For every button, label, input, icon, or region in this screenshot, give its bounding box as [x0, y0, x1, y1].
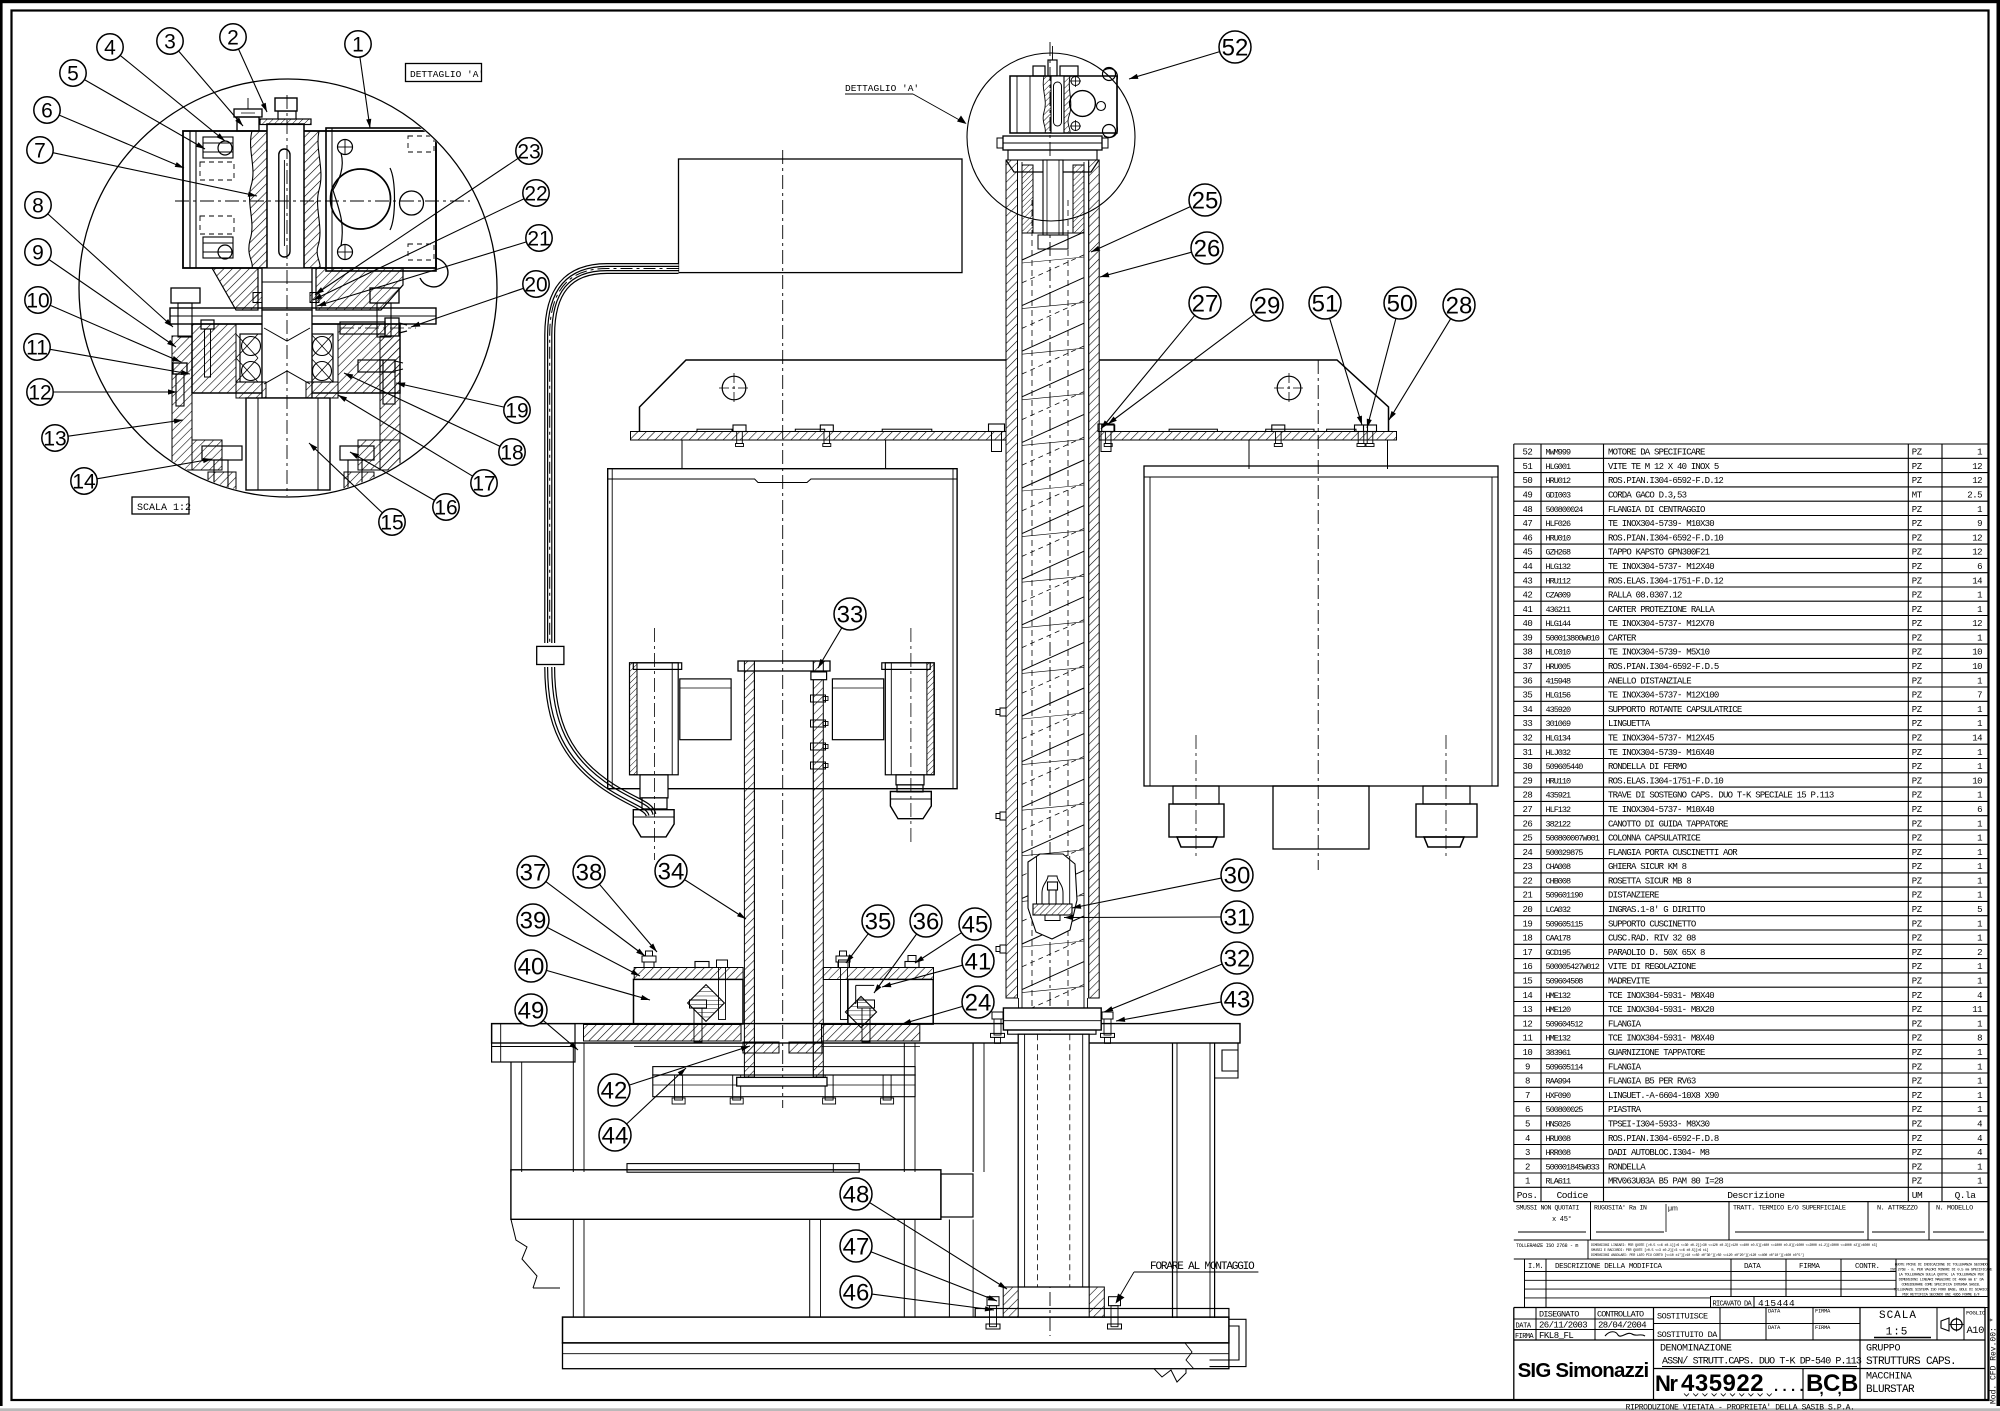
svg-text:RONDELLA: RONDELLA: [1608, 1162, 1646, 1172]
svg-text:PZ: PZ: [1912, 1148, 1923, 1158]
svg-text:PZ: PZ: [1912, 819, 1923, 829]
svg-text:ROS.PIAN.I304-6592-F.D.10: ROS.PIAN.I304-6592-F.D.10: [1608, 533, 1723, 543]
svg-text:7: 7: [1525, 1091, 1530, 1101]
svg-text:PZ: PZ: [1912, 776, 1923, 786]
svg-text:HLG132: HLG132: [1546, 562, 1572, 572]
svg-text:HLG134: HLG134: [1546, 734, 1572, 744]
svg-text:PZ: PZ: [1912, 1005, 1923, 1015]
svg-text:21: 21: [1522, 891, 1532, 901]
svg-text:36: 36: [913, 908, 940, 935]
svg-text:HXF090: HXF090: [1546, 1091, 1572, 1101]
svg-text:PZ: PZ: [1912, 877, 1923, 887]
svg-text:10: 10: [1522, 1048, 1532, 1058]
svg-text:TRAVE DI SOSTEGNO CAPS. DUO T-: TRAVE DI SOSTEGNO CAPS. DUO T-K SPECIALE…: [1608, 791, 1834, 801]
svg-text:22: 22: [524, 182, 547, 205]
svg-text:PZ: PZ: [1912, 834, 1923, 844]
svg-text:ROS.ELAS.I304-1751-F.D.10: ROS.ELAS.I304-1751-F.D.10: [1608, 776, 1723, 786]
svg-text:PZ: PZ: [1912, 591, 1923, 601]
svg-text:PZ: PZ: [1912, 934, 1923, 944]
svg-text:COLONNA CAPSULATRICE: COLONNA CAPSULATRICE: [1608, 834, 1700, 844]
svg-text:1: 1: [1977, 633, 1982, 643]
svg-text:7: 7: [1977, 691, 1982, 701]
svg-text:34: 34: [1522, 705, 1532, 715]
svg-text:4: 4: [1977, 1148, 1982, 1158]
svg-text:18: 18: [500, 441, 523, 464]
svg-text:5: 5: [67, 62, 79, 85]
svg-text:FLANGIA B5 PER RV63: FLANGIA B5 PER RV63: [1608, 1077, 1696, 1087]
svg-text:I.M.: I.M.: [1528, 1263, 1543, 1271]
svg-text:FIRMA: FIRMA: [1815, 1324, 1831, 1331]
svg-text:39: 39: [1522, 633, 1532, 643]
svg-text:LA TOLLERANZA SULLA QUOTA; LA: LA TOLLERANZA SULLA QUOTA; LA TOLLERANZA…: [1899, 1274, 1985, 1278]
svg-text:49: 49: [518, 997, 545, 1024]
svg-text:17: 17: [472, 472, 495, 495]
svg-text:TCE INOX304-5931- M8X20: TCE INOX304-5931- M8X20: [1608, 1005, 1714, 1015]
svg-text:PZ: PZ: [1912, 676, 1923, 686]
svg-text:13: 13: [1522, 1005, 1532, 1015]
svg-text:PZ: PZ: [1912, 1019, 1923, 1029]
svg-text:28: 28: [1522, 791, 1532, 801]
svg-text:509605440: 509605440: [1546, 762, 1584, 772]
svg-text:8: 8: [32, 194, 44, 217]
svg-text:1: 1: [1977, 605, 1982, 615]
svg-text:46: 46: [1522, 533, 1532, 543]
svg-text:1: 1: [1977, 819, 1982, 829]
svg-text:38: 38: [576, 859, 603, 886]
svg-text:HRU010: HRU010: [1546, 533, 1572, 543]
svg-text:QUOTE PRIVE DI INDICAZIONE DI: QUOTE PRIVE DI INDICAZIONE DI TOLLERANZA…: [1895, 1264, 1989, 1268]
svg-text:1: 1: [1977, 762, 1982, 772]
svg-text:PZ: PZ: [1912, 705, 1923, 715]
svg-text:500005427W012: 500005427W012: [1546, 962, 1600, 972]
svg-text:PZ: PZ: [1912, 548, 1923, 558]
svg-text:6: 6: [1525, 1105, 1530, 1115]
svg-text:4: 4: [104, 36, 116, 59]
svg-text:PZ: PZ: [1912, 1162, 1923, 1172]
svg-text:DETTAGLIO 'A': DETTAGLIO 'A': [410, 69, 484, 80]
svg-text:PZ: PZ: [1912, 619, 1923, 629]
svg-text:RALLA 08.0307.12: RALLA 08.0307.12: [1608, 591, 1682, 601]
svg-text:1: 1: [1977, 962, 1982, 972]
svg-text:37: 37: [1522, 662, 1532, 672]
svg-text:TPSEI-I304-5933- M8X30: TPSEI-I304-5933- M8X30: [1608, 1120, 1710, 1130]
svg-text:23: 23: [1522, 862, 1532, 872]
svg-text:31: 31: [1522, 748, 1532, 758]
svg-text:11: 11: [1522, 1034, 1532, 1044]
svg-text:2.5: 2.5: [1967, 491, 1982, 501]
svg-text:HRU005: HRU005: [1546, 662, 1572, 672]
svg-text:30: 30: [1224, 862, 1251, 889]
svg-text:ASSN/ STRUTT.CAPS. DUO T-K DP-: ASSN/ STRUTT.CAPS. DUO T-K DP-540 P.113: [1662, 1356, 1862, 1368]
svg-text:11: 11: [26, 336, 48, 359]
svg-text:UM: UM: [1912, 1190, 1923, 1201]
svg-text:19: 19: [505, 399, 528, 422]
svg-text:500029875: 500029875: [1546, 848, 1584, 858]
svg-text:FOGLIO: FOGLIO: [1966, 1310, 1986, 1317]
svg-text:33: 33: [837, 601, 864, 628]
svg-text:Nr: Nr: [1655, 1371, 1678, 1396]
svg-text:1: 1: [1977, 834, 1982, 844]
svg-text:HME120: HME120: [1546, 1005, 1572, 1015]
svg-text:HLF026: HLF026: [1546, 519, 1572, 529]
svg-text:CONTR.: CONTR.: [1855, 1263, 1880, 1271]
svg-text:1: 1: [1977, 862, 1982, 872]
svg-text:PZ: PZ: [1912, 891, 1923, 901]
svg-text:HME132: HME132: [1546, 991, 1572, 1001]
svg-text:PZ: PZ: [1912, 562, 1923, 572]
svg-text:MWM999: MWM999: [1546, 448, 1572, 458]
svg-text:Codice: Codice: [1557, 1190, 1589, 1201]
svg-text:14: 14: [72, 470, 96, 493]
svg-text:37: 37: [520, 859, 547, 886]
svg-text:RIPRODUZIONE VIETATA - PROPRIE: RIPRODUZIONE VIETATA - PROPRIETA' DELLA …: [1626, 1404, 1855, 1411]
svg-text:22: 22: [1522, 877, 1532, 887]
svg-text:PZ: PZ: [1912, 919, 1923, 929]
svg-text:CORDA GACO D.3,53: CORDA GACO D.3,53: [1608, 491, 1687, 501]
svg-text:1: 1: [1977, 719, 1982, 729]
svg-text:15: 15: [1522, 977, 1532, 987]
svg-text:CONSIDERARE COME SPECIFICA INT: CONSIDERARE COME SPECIFICA INTERNA SASIB…: [1901, 1284, 1980, 1288]
svg-text:1: 1: [1977, 505, 1982, 515]
svg-text:TE INOX304-5739- M5X10: TE INOX304-5739- M5X10: [1608, 648, 1710, 658]
svg-text:36: 36: [1522, 676, 1532, 686]
svg-text:PZ: PZ: [1912, 977, 1923, 987]
svg-text:GCD195: GCD195: [1546, 948, 1572, 958]
svg-text:40: 40: [518, 953, 545, 980]
svg-text:TE INOX304-5737- M12X40: TE INOX304-5737- M12X40: [1608, 562, 1714, 572]
svg-text:45: 45: [1522, 548, 1532, 558]
svg-text:.: .: [1774, 1378, 1778, 1395]
svg-text:SIG Simonazzi: SIG Simonazzi: [1518, 1359, 1649, 1382]
svg-text:PZ: PZ: [1912, 1062, 1923, 1072]
svg-text:1: 1: [1977, 1162, 1982, 1172]
svg-text:ROS.PIAN.I304-6592-F.D.8: ROS.PIAN.I304-6592-F.D.8: [1608, 1134, 1719, 1144]
svg-text:MT: MT: [1912, 491, 1923, 501]
svg-text:B: B: [1841, 1370, 1858, 1397]
svg-text:CONTROLLATO: CONTROLLATO: [1597, 1310, 1644, 1320]
svg-text:GDI003: GDI003: [1546, 491, 1572, 501]
svg-text:.: .: [1800, 1378, 1804, 1395]
svg-text:21: 21: [527, 227, 550, 250]
svg-text:PZ: PZ: [1912, 905, 1923, 915]
svg-text:PZ: PZ: [1912, 719, 1923, 729]
svg-text:42: 42: [1522, 591, 1532, 601]
svg-text:ROS.PIAN.I304-6592-F.D.5: ROS.PIAN.I304-6592-F.D.5: [1608, 662, 1719, 672]
svg-text:1: 1: [1977, 591, 1982, 601]
svg-text:PZ: PZ: [1912, 848, 1923, 858]
svg-text:509605114: 509605114: [1546, 1062, 1584, 1072]
svg-text:500800007W001: 500800007W001: [1546, 834, 1600, 844]
svg-text:STRUTTURS CAPS.: STRUTTURS CAPS.: [1866, 1356, 1956, 1368]
svg-text:,: ,: [1838, 1381, 1842, 1398]
svg-text:20: 20: [1522, 905, 1532, 915]
svg-text:DIMENSIONI LINEARI MAGGIORI DI: DIMENSIONI LINEARI MAGGIORI DI 4000 mm E…: [1899, 1278, 1985, 1283]
svg-text:N. ATTREZZO: N. ATTREZZO: [1877, 1205, 1918, 1213]
svg-text:34: 34: [658, 858, 685, 885]
svg-text:RONDELLA DI FERMO: RONDELLA DI FERMO: [1608, 762, 1687, 772]
svg-text:PZ: PZ: [1912, 633, 1923, 643]
svg-text:PZ: PZ: [1912, 576, 1923, 586]
svg-text:TE INOX304-5737- M10X40: TE INOX304-5737- M10X40: [1608, 805, 1714, 815]
svg-text:383961: 383961: [1546, 1048, 1572, 1058]
svg-text:12: 12: [1972, 533, 1982, 543]
svg-text:PZ: PZ: [1912, 1048, 1923, 1058]
svg-text:26: 26: [1522, 819, 1532, 829]
svg-text:DIMENSIONI LINEARI: PER QUOTE: DIMENSIONI LINEARI: PER QUOTE [>0.5 <=6 …: [1591, 1243, 1877, 1248]
svg-text:.: .: [1783, 1378, 1787, 1395]
svg-text:51: 51: [1312, 290, 1339, 317]
svg-text:DATA: DATA: [1516, 1323, 1532, 1331]
svg-text:1: 1: [1977, 848, 1982, 858]
svg-text:FIRMA: FIRMA: [1799, 1263, 1820, 1271]
svg-text:N. MODELLO: N. MODELLO: [1936, 1205, 1973, 1213]
svg-text:MADREVITE: MADREVITE: [1608, 977, 1650, 987]
svg-text:PZ: PZ: [1912, 462, 1923, 472]
svg-text:TRATT. TERMICO E/O SUPERFICIAL: TRATT. TERMICO E/O SUPERFICIALE: [1733, 1205, 1846, 1213]
svg-text:10: 10: [1972, 662, 1982, 672]
svg-text:FKL8_FL: FKL8_FL: [1539, 1331, 1573, 1341]
svg-text:1: 1: [1977, 891, 1982, 901]
svg-text:8: 8: [1525, 1077, 1530, 1087]
svg-text:1: 1: [1977, 877, 1982, 887]
svg-text:47: 47: [1522, 519, 1532, 529]
svg-text:VITE TE M 12 X 40 INOX 5: VITE TE M 12 X 40 INOX 5: [1608, 462, 1719, 472]
svg-text:FIRMA: FIRMA: [1815, 1308, 1831, 1315]
svg-text:19: 19: [1522, 919, 1532, 929]
svg-text:DISTANZIERE: DISTANZIERE: [1608, 891, 1659, 901]
svg-text:6: 6: [1977, 562, 1982, 572]
svg-text:PZ: PZ: [1912, 991, 1923, 1001]
svg-text:DATA: DATA: [1744, 1263, 1761, 1271]
svg-text:20: 20: [524, 273, 547, 296]
svg-text:32: 32: [1522, 734, 1532, 744]
svg-text:12: 12: [28, 381, 51, 404]
svg-text:CZA009: CZA009: [1546, 591, 1572, 601]
svg-text:51: 51: [1522, 462, 1532, 472]
svg-text:PZ: PZ: [1912, 1091, 1923, 1101]
svg-text:HLC010: HLC010: [1546, 648, 1572, 658]
svg-text:PIASTRA: PIASTRA: [1608, 1105, 1642, 1115]
svg-text:9: 9: [32, 241, 44, 264]
svg-text:DIMENSIONI ANGOLARI: PER LATO: DIMENSIONI ANGOLARI: PER LATO PIU CORTO …: [1591, 1253, 1804, 1258]
svg-text:435921: 435921: [1546, 791, 1572, 801]
svg-text:HRU012: HRU012: [1546, 476, 1572, 486]
svg-text:PZ: PZ: [1912, 662, 1923, 672]
svg-text:29: 29: [1522, 776, 1532, 786]
svg-text:7: 7: [34, 139, 46, 162]
svg-text:HRU112: HRU112: [1546, 576, 1572, 586]
svg-text:Pos.: Pos.: [1517, 1190, 1538, 1201]
svg-text:RAA994: RAA994: [1546, 1077, 1572, 1087]
svg-text:PZ: PZ: [1912, 448, 1923, 458]
svg-text:52: 52: [1222, 34, 1249, 61]
svg-text:4: 4: [1525, 1134, 1530, 1144]
svg-text:DATA: DATA: [1768, 1308, 1781, 1315]
svg-text:1: 1: [1977, 977, 1982, 987]
svg-text:PZ: PZ: [1912, 605, 1923, 615]
svg-text:1: 1: [1977, 1019, 1982, 1029]
svg-text:415948: 415948: [1546, 676, 1572, 686]
svg-text:SMUSSI E RACCORDI: PER QUOTE [: SMUSSI E RACCORDI: PER QUOTE [>0.5 <=3 ±…: [1591, 1248, 1709, 1253]
svg-text:4: 4: [1977, 991, 1982, 1001]
svg-text:RLA611: RLA611: [1546, 1177, 1572, 1187]
svg-text:8: 8: [1977, 1034, 1982, 1044]
svg-text:RUGOSITA' Ra IN: RUGOSITA' Ra IN: [1594, 1205, 1647, 1212]
svg-text:HRU110: HRU110: [1546, 776, 1572, 786]
svg-text:10: 10: [26, 289, 49, 312]
svg-text:BLURSTAR: BLURSTAR: [1866, 1384, 1915, 1396]
svg-text:PZ: PZ: [1912, 1177, 1923, 1187]
svg-text:TE INOX304-5737- M12X70: TE INOX304-5737- M12X70: [1608, 619, 1714, 629]
svg-text:14: 14: [1972, 576, 1982, 586]
svg-text:DATA: DATA: [1768, 1324, 1781, 1331]
svg-text:SUPPORTO ROTANTE CAPSULATRICE: SUPPORTO ROTANTE CAPSULATRICE: [1608, 705, 1742, 715]
svg-text:3: 3: [1525, 1148, 1530, 1158]
svg-text:12: 12: [1972, 476, 1982, 486]
svg-text:Q.la: Q.la: [1955, 1190, 1977, 1201]
svg-text:500001845W033: 500001845W033: [1546, 1162, 1600, 1172]
svg-text:42: 42: [601, 1077, 628, 1104]
svg-text:HLF132: HLF132: [1546, 805, 1572, 815]
svg-text:DESCRIZIONE DELLA MODIFICA: DESCRIZIONE DELLA MODIFICA: [1555, 1263, 1663, 1271]
svg-text:PZ: PZ: [1912, 1120, 1923, 1130]
svg-text:2: 2: [1977, 948, 1982, 958]
svg-text:2: 2: [1525, 1162, 1530, 1172]
svg-text:ROS.PIAN.I304-6592-F.D.12: ROS.PIAN.I304-6592-F.D.12: [1608, 476, 1723, 486]
svg-text:TE INOX304-5739- M10X30: TE INOX304-5739- M10X30: [1608, 519, 1714, 529]
svg-text:27: 27: [1522, 805, 1532, 815]
svg-text:500800025: 500800025: [1546, 1105, 1584, 1115]
svg-text:CHA008: CHA008: [1546, 862, 1572, 872]
svg-text:ANELLO DISTANZIALE: ANELLO DISTANZIALE: [1608, 676, 1691, 686]
svg-text:1: 1: [1977, 919, 1982, 929]
svg-text:13: 13: [43, 427, 66, 450]
svg-text:382122: 382122: [1546, 819, 1572, 829]
svg-text:SMUSSI NON QUOTATI: SMUSSI NON QUOTATI: [1516, 1205, 1580, 1212]
svg-text:PZ: PZ: [1912, 762, 1923, 772]
svg-text:TCE INOX304-5931- M8X40: TCE INOX304-5931- M8X40: [1608, 991, 1714, 1001]
svg-text:PZ: PZ: [1912, 1105, 1923, 1115]
svg-text:5: 5: [1977, 905, 1982, 915]
svg-text:LCA032: LCA032: [1546, 905, 1572, 915]
svg-text:435920: 435920: [1546, 705, 1572, 715]
svg-text:14: 14: [1522, 991, 1532, 1001]
svg-text:14: 14: [1972, 734, 1982, 744]
svg-text:6: 6: [41, 99, 53, 122]
svg-text:301069: 301069: [1546, 719, 1572, 729]
svg-text:PZ: PZ: [1912, 533, 1923, 543]
svg-text:435922: 435922: [1681, 1370, 1764, 1397]
svg-text:TE INOX304-5737- M12X100: TE INOX304-5737- M12X100: [1608, 691, 1719, 701]
svg-text:CHB008: CHB008: [1546, 877, 1572, 887]
svg-text:10: 10: [1972, 648, 1982, 658]
svg-text:4: 4: [1977, 1134, 1982, 1144]
svg-text:500013800W010: 500013800W010: [1546, 633, 1600, 643]
svg-text:.: .: [1791, 1378, 1795, 1395]
svg-text:PZ: PZ: [1912, 1077, 1923, 1087]
svg-text:FLANGIA DI CENTRAGGIO: FLANGIA DI CENTRAGGIO: [1608, 505, 1705, 515]
svg-text:HLG144: HLG144: [1546, 619, 1572, 629]
svg-text:9: 9: [1977, 519, 1982, 529]
svg-text:1: 1: [1977, 448, 1982, 458]
svg-text:ROSETTA SICUR MB 8: ROSETTA SICUR MB 8: [1608, 877, 1691, 887]
svg-text:43: 43: [1224, 986, 1251, 1013]
svg-text:PZ: PZ: [1912, 791, 1923, 801]
svg-text:TE INOX304-5737- M12X45: TE INOX304-5737- M12X45: [1608, 734, 1714, 744]
svg-text:TOLLERANZE SISTEMA ISO FORO BA: TOLLERANZE SISTEMA ISO FORO BASE, BOLE D…: [1894, 1289, 1990, 1293]
svg-text:10: 10: [1972, 776, 1982, 786]
svg-text:CARTER: CARTER: [1608, 633, 1637, 643]
svg-text:15: 15: [380, 511, 403, 534]
svg-text:1: 1: [1977, 791, 1982, 801]
svg-text:PZ: PZ: [1912, 519, 1923, 529]
svg-text:18: 18: [1522, 934, 1532, 944]
svg-text:48: 48: [843, 1181, 870, 1208]
svg-text:436211: 436211: [1546, 605, 1572, 615]
svg-text:TOLLERANZE ISO 2768 - m: TOLLERANZE ISO 2768 - m: [1516, 1243, 1578, 1249]
svg-text:41: 41: [965, 948, 992, 975]
svg-text:17: 17: [1522, 948, 1532, 958]
svg-text:INGRAS.1-8' G DIRITTO: INGRAS.1-8' G DIRITTO: [1608, 905, 1705, 915]
svg-text:HLG156: HLG156: [1546, 691, 1572, 701]
svg-text:35: 35: [1522, 691, 1532, 701]
svg-text:23: 23: [517, 140, 540, 163]
svg-text:509604512: 509604512: [1546, 1019, 1584, 1029]
svg-text:1: 1: [1977, 1091, 1982, 1101]
svg-text:DISEGNATO: DISEGNATO: [1539, 1310, 1579, 1320]
svg-text:PZ: PZ: [1912, 962, 1923, 972]
svg-text:PZ: PZ: [1912, 648, 1923, 658]
svg-text:PZ: PZ: [1912, 1034, 1923, 1044]
svg-text:CARTER PROTEZIONE RALLA: CARTER PROTEZIONE RALLA: [1608, 605, 1715, 615]
svg-text:40: 40: [1522, 619, 1532, 629]
svg-text:44: 44: [602, 1122, 629, 1149]
svg-text:PZ: PZ: [1912, 734, 1923, 744]
svg-text:12: 12: [1972, 619, 1982, 629]
svg-text:1: 1: [1977, 1048, 1982, 1058]
svg-text:28/04/2004: 28/04/2004: [1598, 1321, 1646, 1331]
svg-text:GRUPPO: GRUPPO: [1866, 1344, 1901, 1355]
svg-text:12: 12: [1522, 1019, 1532, 1029]
svg-text:TE INOX304-5739- M16X40: TE INOX304-5739- M16X40: [1608, 748, 1714, 758]
svg-text:31: 31: [1224, 904, 1251, 931]
svg-text:PZ: PZ: [1912, 691, 1923, 701]
svg-text:ROS.ELAS.I304-1751-F.D.12: ROS.ELAS.I304-1751-F.D.12: [1608, 576, 1723, 586]
svg-text:28: 28: [1446, 292, 1473, 319]
svg-text:26: 26: [1194, 235, 1221, 262]
svg-text:3: 3: [164, 30, 176, 53]
svg-text:GUARNIZIONE TAPPATORE: GUARNIZIONE TAPPATORE: [1608, 1048, 1705, 1058]
svg-text:1: 1: [1977, 1062, 1982, 1072]
svg-text:1: 1: [1525, 1177, 1530, 1187]
svg-text:50: 50: [1387, 290, 1414, 317]
svg-text:32: 32: [1224, 945, 1251, 972]
svg-text:PARAOLIO D. 50X 65X 8: PARAOLIO D. 50X 65X 8: [1608, 948, 1705, 958]
svg-text:SCALA: SCALA: [1879, 1310, 1917, 1322]
svg-text:43: 43: [1522, 576, 1532, 586]
svg-text:35: 35: [865, 908, 892, 935]
svg-text:1: 1: [352, 33, 364, 56]
svg-text:SOSTITUISCE: SOSTITUISCE: [1657, 1312, 1708, 1322]
svg-text:PZ: PZ: [1912, 748, 1923, 758]
svg-text:11: 11: [1972, 1005, 1982, 1015]
svg-text:Mod. CFD Rev.00: *: Mod. CFD Rev.00: *: [1990, 1318, 1999, 1404]
svg-text:HRU008: HRU008: [1546, 1134, 1572, 1144]
svg-text:SUPPORTO CUSCINETTO: SUPPORTO CUSCINETTO: [1608, 919, 1696, 929]
svg-text:,: ,: [1820, 1381, 1824, 1398]
svg-text:26/11/2003: 26/11/2003: [1539, 1321, 1587, 1331]
svg-text:47: 47: [843, 1233, 870, 1260]
